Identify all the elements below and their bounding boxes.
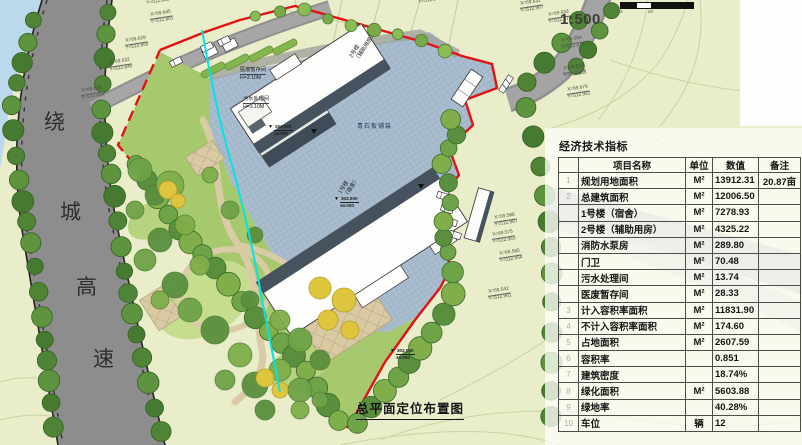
table-cell [759, 253, 801, 269]
header-num [559, 158, 579, 173]
table-cell: M² [686, 270, 713, 286]
table-cell: 绿地率 [579, 399, 686, 415]
table-row: 污水处理间M²13.74 [559, 270, 801, 286]
table-cell: 10 [559, 415, 579, 431]
table-cell: 7 [559, 367, 579, 383]
table-cell: 40.28% [713, 399, 759, 415]
table-row: 7建筑密度18.74% [559, 367, 801, 383]
table-cell: 13.74 [713, 270, 759, 286]
table-cell: 3 [559, 302, 579, 318]
table-cell: 1 [559, 173, 579, 189]
table-cell: 污水处理间 [579, 270, 686, 286]
elevation-marker: ▼302.900±0.000 [390, 348, 415, 360]
paving-label: 青石板铺装 [357, 122, 392, 130]
table-cell: 174.60 [713, 318, 759, 334]
scale-text: 1:500 [560, 11, 601, 28]
table-cell: 12006.50 [713, 189, 759, 205]
table-cell: 70.48 [713, 253, 759, 269]
table-cell: 占地面积 [579, 334, 686, 350]
table-row: 医废暂存间M²28.33 [559, 286, 801, 302]
table-cell [686, 399, 713, 415]
table-cell: M² [686, 286, 713, 302]
table-cell: M² [686, 237, 713, 253]
highway-label-char: 城 [60, 196, 81, 226]
table-cell: 计入容积率面积 [579, 302, 686, 318]
economic-indicators-table: 项目名称 单位 数值 备注 1规划用地面积M²13912.3120.87亩2总建… [558, 157, 801, 432]
table-cell: M² [686, 221, 713, 237]
table-cell: 8 [559, 383, 579, 399]
table-cell: M² [686, 334, 713, 350]
table-cell [686, 367, 713, 383]
table-cell [559, 286, 579, 302]
table-row: 门卫M²70.48 [559, 253, 801, 269]
table-cell: 7278.93 [713, 205, 759, 221]
table-cell [759, 270, 801, 286]
table-cell: 28.33 [713, 286, 759, 302]
table-cell [759, 334, 801, 350]
table-row: 1号楼（宿舍）M²7278.93 [559, 205, 801, 221]
table-cell: 5603.88 [713, 383, 759, 399]
table-cell: 18.74% [713, 367, 759, 383]
table-cell: M² [686, 205, 713, 221]
table-cell: 5 [559, 334, 579, 350]
table-cell [759, 318, 801, 334]
highway-label-char: 绕 [44, 106, 65, 136]
table-cell: 4325.22 [713, 221, 759, 237]
table-cell: 9 [559, 399, 579, 415]
header-remark: 备注 [759, 158, 801, 173]
table-cell: 规划用地面积 [579, 173, 686, 189]
table-cell: M² [686, 189, 713, 205]
table-row: 6容积率0.851 [559, 351, 801, 367]
table-cell: M² [686, 253, 713, 269]
table-cell: 不计入容积率面积 [579, 318, 686, 334]
header-value: 数值 [713, 158, 759, 173]
table-header-row: 项目名称 单位 数值 备注 [559, 158, 801, 173]
table-cell [559, 270, 579, 286]
table-cell: 2号楼（辅助用房） [579, 221, 686, 237]
header-unit: 单位 [686, 158, 713, 173]
economic-indicators-panel: 经济技术指标 项目名称 单位 数值 备注 1规划用地面积M²13912.3120… [545, 128, 802, 445]
table-cell: 13912.31 [713, 173, 759, 189]
drawing-title: 总平面定位布置图 [356, 398, 464, 420]
table-cell: M² [686, 173, 713, 189]
table-cell: 1号楼（宿舍） [579, 205, 686, 221]
table-cell [759, 415, 801, 431]
table-cell: 6 [559, 351, 579, 367]
table-row: 消防水泵房M²289.80 [559, 237, 801, 253]
table-cell [759, 205, 801, 221]
highway-label-char: 高 [76, 271, 97, 301]
table-cell [759, 189, 801, 205]
table-cell: 2 [559, 189, 579, 205]
table-cell: 总建筑面积 [579, 189, 686, 205]
table-cell [759, 237, 801, 253]
table-cell: 12 [713, 415, 759, 431]
elevation-triangle-icon: ▼ [390, 348, 395, 360]
table-row: 9绿地率40.28% [559, 399, 801, 415]
table-row: 4不计入容积率面积M²174.60 [559, 318, 801, 334]
elevation-triangle-icon: ▼ [268, 124, 273, 136]
table-cell [686, 351, 713, 367]
scale-bar-zero: 0 [620, 9, 623, 14]
scale-bar-twenty: 20 [648, 9, 653, 14]
table-cell: M² [686, 318, 713, 334]
table-cell: 医废暂存间 [579, 286, 686, 302]
table-cell [559, 221, 579, 237]
table-cell [559, 253, 579, 269]
medical-waste-room-label: 医废暂存间 H=3.10M [240, 67, 266, 81]
table-title: 经济技术指标 [559, 138, 802, 154]
table-cell [759, 286, 801, 302]
table-cell: 容积率 [579, 351, 686, 367]
table-cell: 0.851 [713, 351, 759, 367]
table-row: 10车位辆12 [559, 415, 801, 431]
table-cell [759, 399, 801, 415]
table-cell [559, 205, 579, 221]
table-cell: 20.87亩 [759, 173, 801, 189]
table-cell [759, 221, 801, 237]
table-cell: 消防水泵房 [579, 237, 686, 253]
table-cell: 建筑密度 [579, 367, 686, 383]
site-plan-canvas: 青石板铺装 2号楼 （辅助用房） 1号楼 （宿舍） 医废暂存间 H=3.10M … [0, 0, 802, 445]
table-row: 2总建筑面积M²12006.50 [559, 189, 801, 205]
table-cell [559, 237, 579, 253]
elevation-marker: ▼302.900±0.000 [268, 124, 293, 136]
table-cell: 车位 [579, 415, 686, 431]
table-cell: 门卫 [579, 253, 686, 269]
table-cell [759, 383, 801, 399]
table-cell: M² [686, 302, 713, 318]
table-cell [759, 351, 801, 367]
table-cell [759, 302, 801, 318]
sheet-white-corner [740, 0, 802, 126]
graphic-scale-bar [620, 2, 694, 9]
elevation-marker: ▼302.900±0.000 [334, 196, 359, 208]
table-row: 1规划用地面积M²13912.3120.87亩 [559, 173, 801, 189]
highway-label-char: 速 [93, 343, 114, 373]
table-row: 3计入容积率面积M²11831.90 [559, 302, 801, 318]
table-cell: 绿化面积 [579, 383, 686, 399]
table-cell: 辆 [686, 415, 713, 431]
header-name: 项目名称 [579, 158, 686, 173]
table-row: 8绿化面积M²5603.88 [559, 383, 801, 399]
table-cell: 4 [559, 318, 579, 334]
table-row: 5占地面积M²2607.59 [559, 334, 801, 350]
table-cell: 2607.59 [713, 334, 759, 350]
table-cell: M² [686, 383, 713, 399]
table-cell: 11831.90 [713, 302, 759, 318]
sewage-room-label: 污水处理间 H=3.10M [243, 96, 269, 110]
elevation-triangle-icon: ▼ [334, 196, 339, 208]
table-cell: 289.80 [713, 237, 759, 253]
table-row: 2号楼（辅助用房）M²4325.22 [559, 221, 801, 237]
table-cell [759, 367, 801, 383]
